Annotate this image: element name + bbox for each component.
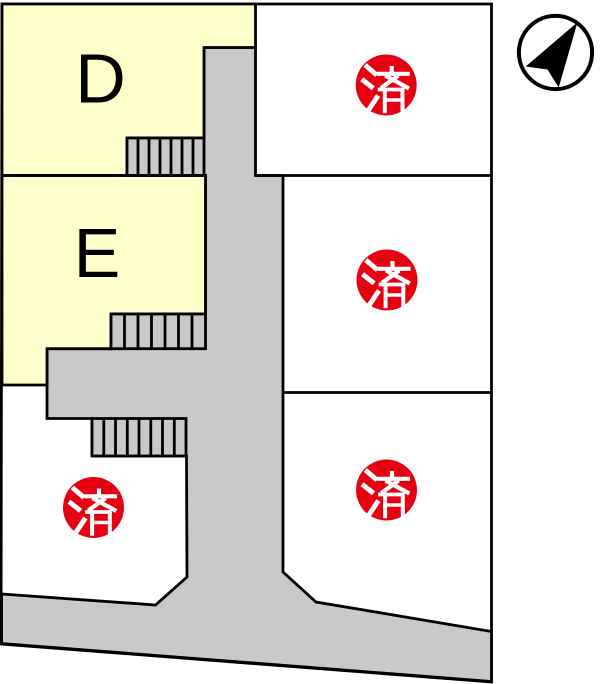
svg-text:D: D — [75, 40, 126, 118]
svg-text:E: E — [74, 214, 121, 292]
